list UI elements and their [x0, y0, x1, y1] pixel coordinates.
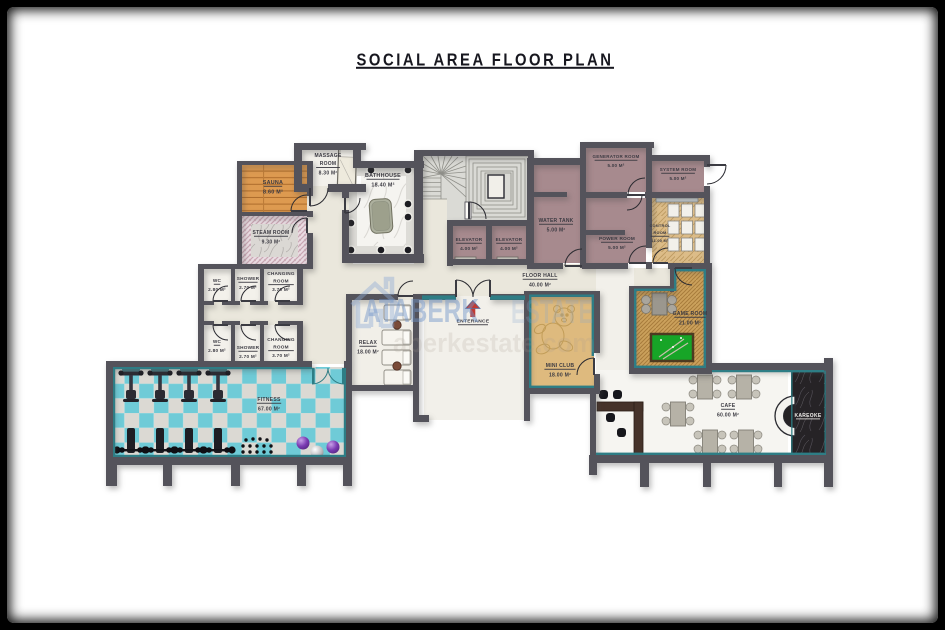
svg-text:2.80 M²: 2.80 M²	[208, 287, 226, 292]
svg-text:60.00 M²: 60.00 M²	[717, 413, 739, 419]
svg-text:4.00 M²: 4.00 M²	[460, 246, 478, 251]
svg-text:8.60 M²: 8.60 M²	[263, 190, 283, 196]
svg-text:ELEVATOR: ELEVATOR	[496, 237, 523, 242]
svg-text:3.70 M²: 3.70 M²	[272, 287, 290, 292]
svg-text:9.30 M²: 9.30 M²	[262, 240, 281, 246]
svg-text:ROOM: ROOM	[273, 278, 289, 283]
svg-text:WATER TANK: WATER TANK	[538, 218, 573, 224]
svg-text:ROOM: ROOM	[320, 161, 337, 167]
svg-text:MINI CLUB: MINI CLUB	[546, 363, 575, 369]
svg-text:ESTATE: ESTATE	[511, 293, 593, 330]
svg-text:18.40 M²: 18.40 M²	[371, 183, 394, 189]
svg-text:CAFE: CAFE	[721, 403, 736, 409]
svg-text:CHANGING: CHANGING	[267, 271, 295, 276]
svg-text:FLOOR HALL: FLOOR HALL	[522, 273, 557, 279]
svg-text:3.70 M²: 3.70 M²	[272, 353, 290, 358]
svg-text:STEAM ROOM: STEAM ROOM	[253, 230, 290, 236]
svg-text:5.00 M²: 5.00 M²	[669, 176, 686, 181]
svg-text:SYSTEM ROOM: SYSTEM ROOM	[660, 167, 697, 172]
svg-text:FITNESS: FITNESS	[257, 397, 281, 403]
svg-text:4.00 M²: 4.00 M²	[500, 246, 518, 251]
svg-text:ROOM: ROOM	[273, 344, 289, 349]
svg-text:40.00 M²: 40.00 M²	[529, 283, 551, 289]
svg-text:5.00 M²: 5.00 M²	[608, 245, 626, 250]
svg-text:2.70 M²: 2.70 M²	[239, 285, 257, 290]
svg-text:WC: WC	[213, 339, 222, 344]
svg-text:5.00 M²: 5.00 M²	[547, 228, 566, 234]
svg-text:SHOWER: SHOWER	[237, 276, 260, 281]
svg-text:WC: WC	[213, 278, 222, 283]
svg-text:GENERATOR ROOM: GENERATOR ROOM	[592, 154, 639, 159]
svg-text:ATABERK: ATABERK	[363, 292, 479, 329]
svg-text:18.00 M²: 18.00 M²	[357, 350, 379, 356]
svg-text:SAUNA: SAUNA	[263, 180, 283, 186]
svg-text:5.00 M²: 5.00 M²	[607, 163, 624, 168]
svg-text:2.80 M²: 2.80 M²	[208, 348, 226, 353]
svg-text:11.00 M²: 11.00 M²	[651, 238, 669, 243]
svg-text:CHANGING: CHANGING	[267, 337, 295, 342]
svg-text:ELEVATOR: ELEVATOR	[456, 237, 483, 242]
svg-text:RELAX: RELAX	[359, 340, 378, 346]
svg-text:21.00 M²: 21.00 M²	[679, 321, 701, 327]
svg-text:8.30 M²: 8.30 M²	[319, 170, 338, 176]
svg-text:MASSAGE: MASSAGE	[314, 153, 341, 159]
svg-text:BATHHOUSE: BATHHOUSE	[365, 173, 401, 179]
svg-text:18.00 M²: 18.00 M²	[549, 373, 571, 379]
svg-text:CONTROL: CONTROL	[650, 223, 671, 228]
svg-text:SOCIAL AREA FLOOR PLAN: SOCIAL AREA FLOOR PLAN	[357, 49, 614, 69]
svg-text:GAME ROOM: GAME ROOM	[673, 311, 708, 317]
svg-text:aberkestate.com: aberkestate.com	[393, 328, 595, 358]
svg-text:KAREOKE: KAREOKE	[794, 413, 821, 419]
svg-text:POWER ROOM: POWER ROOM	[599, 236, 635, 241]
svg-text:67.00 M²: 67.00 M²	[258, 407, 280, 413]
svg-text:SHOWER: SHOWER	[237, 345, 260, 350]
svg-text:2.70 M²: 2.70 M²	[239, 354, 257, 359]
svg-text:ROOM: ROOM	[653, 230, 666, 235]
